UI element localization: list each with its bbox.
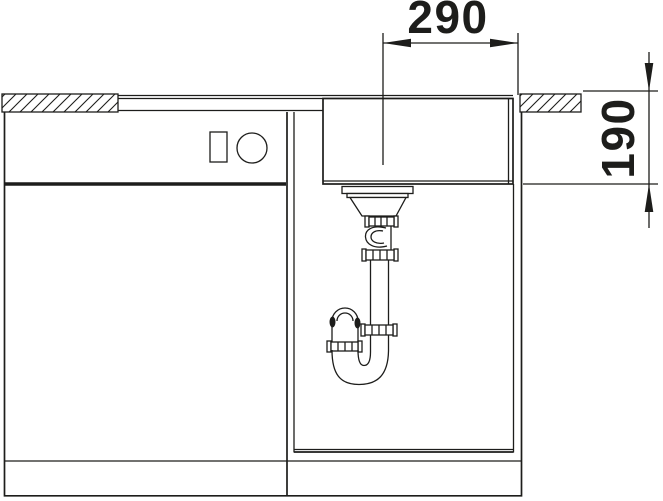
trap-dome-outer xyxy=(332,308,358,321)
door-rectangle-symbol xyxy=(210,132,227,162)
sink-bowl-outline xyxy=(323,99,513,185)
trap-dome-inner xyxy=(337,313,353,321)
siphon-nut-2 xyxy=(362,249,398,261)
door-circle-symbol xyxy=(237,133,267,163)
dim-190-arrow-top xyxy=(645,63,654,91)
technical-drawing-page: 290 190 xyxy=(0,0,663,501)
trap-side-bolt-right xyxy=(355,318,361,329)
siphon-nut-1 xyxy=(365,216,398,227)
strainer-body-taper xyxy=(350,198,406,217)
dim-290-arrow-right xyxy=(490,39,518,48)
siphon-nut-3 xyxy=(361,324,397,336)
siphon-elbow xyxy=(365,226,391,250)
countertop-hatch-right xyxy=(520,94,581,112)
siphon-trap xyxy=(327,308,389,385)
sink-bowl xyxy=(323,99,513,185)
sink-section-drawing: 290 190 xyxy=(0,0,663,501)
strainer-flange xyxy=(342,187,413,194)
dim-190-arrow-bottom xyxy=(645,184,654,212)
dimension-290-label: 290 xyxy=(407,0,488,43)
trap-side-bolt-left xyxy=(330,317,336,328)
dimension-190: 190 xyxy=(523,52,658,228)
trap-ubend-outer xyxy=(332,350,389,385)
countertop-hatch-left xyxy=(2,94,118,112)
drain-assembly xyxy=(327,187,413,385)
dimension-190-label: 190 xyxy=(592,97,644,178)
